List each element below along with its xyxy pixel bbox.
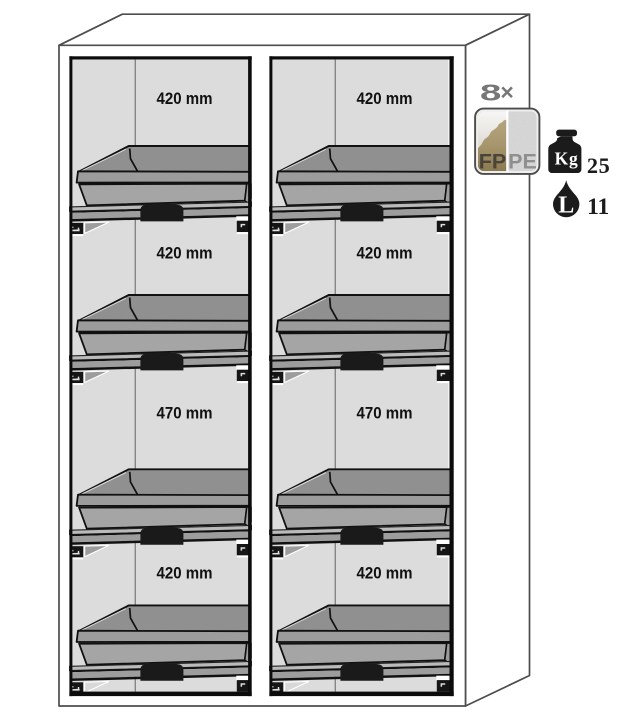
svg-text:11: 11 [587,194,609,220]
svg-text:25: 25 [587,153,611,178]
svg-text:FP: FP [479,149,506,173]
svg-text:×: × [500,79,513,105]
svg-text:PE: PE [508,149,537,173]
svg-text:420 mm: 420 mm [357,244,413,263]
svg-text:470 mm: 470 mm [157,404,213,423]
svg-text:Kg: Kg [555,148,579,168]
svg-text:420 mm: 420 mm [357,564,413,583]
svg-text:470 mm: 470 mm [357,404,413,423]
svg-text:420 mm: 420 mm [157,89,213,108]
svg-text:420 mm: 420 mm [357,89,413,108]
svg-text:420 mm: 420 mm [157,564,213,583]
svg-text:420 mm: 420 mm [157,244,213,263]
svg-text:8: 8 [480,79,501,106]
svg-text:L: L [558,193,574,219]
